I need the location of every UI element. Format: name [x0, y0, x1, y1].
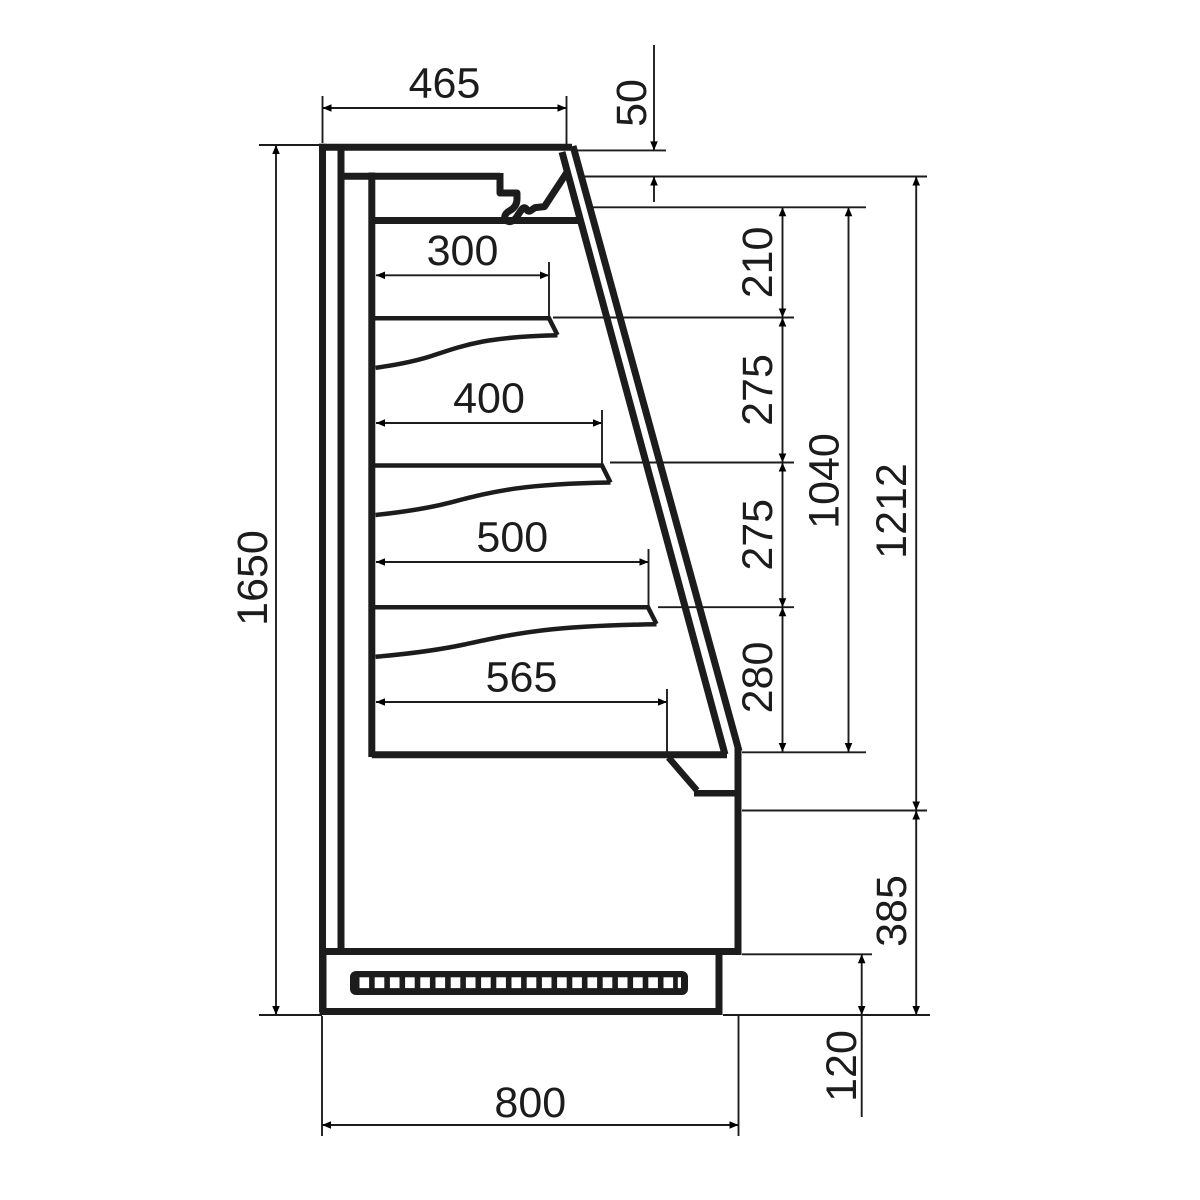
svg-text:210: 210 — [734, 227, 782, 299]
svg-text:300: 300 — [427, 227, 499, 275]
svg-text:465: 465 — [409, 60, 481, 108]
svg-text:800: 800 — [494, 1079, 566, 1127]
svg-text:280: 280 — [734, 642, 782, 714]
svg-text:275: 275 — [734, 499, 782, 571]
svg-text:1040: 1040 — [801, 433, 849, 529]
svg-text:500: 500 — [476, 514, 548, 562]
svg-text:120: 120 — [818, 1030, 866, 1102]
svg-text:1212: 1212 — [868, 463, 916, 559]
svg-text:1650: 1650 — [229, 530, 277, 626]
svg-text:385: 385 — [868, 875, 916, 947]
svg-text:565: 565 — [486, 654, 558, 702]
svg-text:275: 275 — [734, 354, 782, 426]
svg-text:400: 400 — [453, 375, 525, 423]
svg-text:50: 50 — [608, 79, 656, 127]
